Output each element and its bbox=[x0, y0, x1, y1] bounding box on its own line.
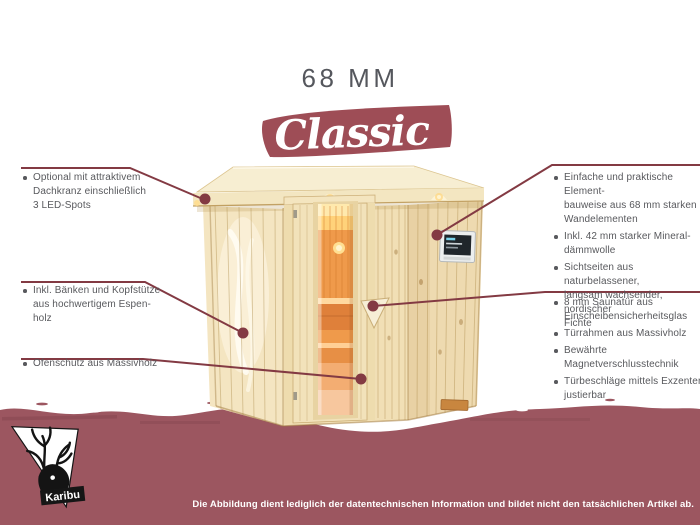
page-title: 68 MM bbox=[0, 63, 700, 94]
brush-streak bbox=[470, 418, 590, 421]
interior-bench bbox=[318, 304, 353, 330]
feature-benches: Inkl. Bänken und Kopfstütze aus hochwert… bbox=[21, 284, 196, 326]
sauna-door-glass bbox=[318, 204, 353, 415]
product-infographic: Classic Karibu 68 MM Optional bbox=[0, 0, 700, 525]
interior-step bbox=[318, 343, 353, 348]
feature-glass-door: 8 mm Saunatür aus Einscheibensicherheits… bbox=[552, 296, 700, 324]
glass-haze bbox=[318, 390, 353, 415]
glass-shade bbox=[350, 204, 354, 415]
feature-magnet-lock: Bewährte Magnetverschlusstechnik bbox=[552, 344, 700, 372]
brush-speck bbox=[36, 403, 48, 406]
interior-step bbox=[318, 348, 353, 363]
classic-banner: Classic bbox=[262, 105, 452, 160]
sauna-control-panel bbox=[439, 230, 475, 262]
sauna-illustration bbox=[193, 166, 484, 426]
disclaimer-text: Die Abbildung dient lediglich der datent… bbox=[192, 499, 694, 510]
heater-vent bbox=[441, 400, 468, 411]
interior-lamp bbox=[336, 245, 342, 251]
series-name: Classic bbox=[274, 106, 431, 159]
callout-dot bbox=[368, 301, 379, 312]
door-hinge bbox=[294, 392, 298, 400]
callout-dot bbox=[432, 230, 443, 241]
feature-element-construction: Einfache und praktische Element- bauweis… bbox=[552, 171, 700, 227]
sauna-roof-top bbox=[197, 166, 484, 192]
brush-streak bbox=[140, 421, 220, 424]
callout-dot bbox=[200, 194, 211, 205]
callout-dot bbox=[238, 328, 249, 339]
feature-list-left: Optional mit attraktivem Dachkranz einsc… bbox=[21, 171, 196, 374]
interior-bench bbox=[318, 298, 353, 304]
feature-roof-leds: Optional mit attraktivem Dachkranz einsc… bbox=[21, 171, 196, 213]
feature-mineral-wool: Inkl. 42 mm starker Mineral- dämmwolle bbox=[552, 230, 700, 258]
feature-heater-guard: Ofenschutz aus Massivholz bbox=[21, 357, 196, 371]
wood-knot bbox=[419, 279, 423, 285]
wood-knot bbox=[394, 249, 398, 254]
wood-knot bbox=[387, 336, 390, 341]
wood-knot bbox=[438, 349, 442, 354]
glass-reflection bbox=[318, 204, 322, 415]
wood-knot bbox=[459, 319, 463, 325]
brush-speck bbox=[516, 409, 528, 412]
feature-list-door: 8 mm Saunatür aus Einscheibensicherheits… bbox=[552, 296, 700, 406]
door-left-jamb bbox=[284, 205, 293, 424]
wood-swirl bbox=[217, 217, 269, 373]
feature-door-fittings: Türbeschläge mittels Exzenter justierbar bbox=[552, 375, 700, 403]
callout-dot bbox=[356, 374, 367, 385]
door-hinge bbox=[294, 210, 298, 218]
feature-door-frame: Türrahmen aus Massivholz bbox=[552, 327, 700, 341]
